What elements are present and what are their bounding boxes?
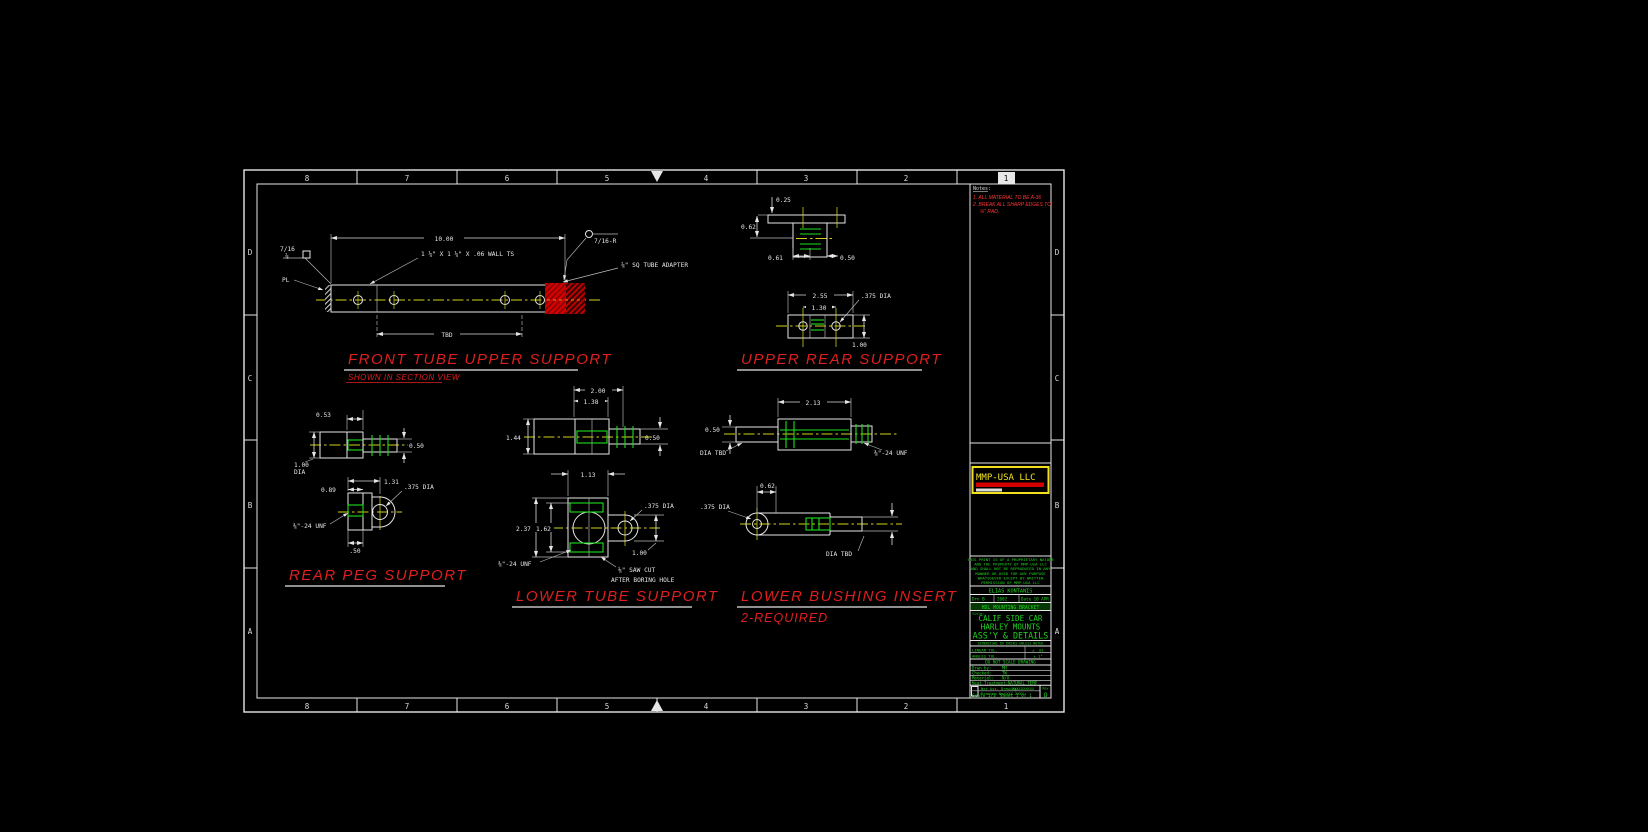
zone-label: 1 <box>1004 702 1009 711</box>
dim-label: .50 <box>349 548 360 555</box>
drn-date-field: 2002 <box>997 597 1008 602</box>
note-line: 2. BREAK ALL SHARP EDGES TO <box>972 202 1051 208</box>
leader-note: .375 DIA <box>644 503 674 510</box>
cad-viewport: 8 7 6 5 4 3 2 1 8 7 6 5 4 3 2 1 D C B A … <box>0 0 1648 832</box>
zone-label: 8 <box>305 174 310 183</box>
dim-label: 1.38 <box>584 399 599 406</box>
tol-angle-value: ± 1° <box>1033 654 1042 659</box>
heat-value: NATURAL TEMP <box>1008 680 1037 685</box>
plate-label: PL <box>282 277 290 284</box>
zone-label: 8 <box>305 702 310 711</box>
weld-symbol-right: 7/16-R <box>564 231 618 281</box>
dim-label: 10.00 <box>435 236 454 243</box>
company-logo: MMP-USA LLC <box>973 467 1049 493</box>
view-title: REAR PEG SUPPORT <box>289 567 467 584</box>
dim-label: 2.13 <box>806 400 821 407</box>
rev-value: O <box>1044 691 1048 699</box>
zone-label: 5 <box>605 702 610 711</box>
next-assy-value: XXXXXXXXXX <box>1012 687 1035 691</box>
dim-label: 0.50 <box>840 255 855 262</box>
dim-label: 0.62 <box>741 224 756 231</box>
center-mark-top <box>651 171 663 182</box>
rev-label: Rev <box>1043 687 1049 691</box>
dim-label: 2.55 <box>813 293 828 300</box>
dim-label: 1.62 <box>536 526 551 533</box>
dim-label: 1.30 <box>812 305 827 312</box>
zone-label: C <box>1055 374 1060 383</box>
logo-red-bar <box>976 483 1044 488</box>
leader-note: DIA TBD <box>826 551 852 558</box>
dim-label: 1.00 <box>294 462 309 469</box>
view-front-tube-upper-support: 10.00 7/16 ⅞ PL 1 ¼" X 1 ¼" X .06 WALL T… <box>280 231 688 383</box>
view-title: FRONT TUBE UPPER SUPPORT <box>348 351 612 368</box>
zone-label: B <box>248 501 253 510</box>
leader-note: ⅛" SAW CUT <box>618 565 656 574</box>
dim-label: 1.31 <box>384 479 399 486</box>
weld-size-label: 7/16-R <box>594 238 617 245</box>
dim-label: 0.89 <box>321 487 336 494</box>
leader-note: ⅜"-24 UNF <box>293 522 327 530</box>
no-scale-note: DO NOT SCALE DRAWING <box>985 660 1036 665</box>
zone-label: 6 <box>505 174 510 183</box>
dim-label: 0.53 <box>316 412 331 419</box>
dim-label: 2.37 <box>516 526 531 533</box>
dim-label: 1.44 <box>506 435 521 442</box>
dim-label: TBD <box>441 332 452 339</box>
tol-linear-label: LINEAR TOL. <box>972 648 998 653</box>
tol-linear-value: ± .01 <box>1032 648 1044 653</box>
leader-note: .375 DIA <box>700 504 730 511</box>
leader-note: ⅜"-24 UNF <box>498 560 532 568</box>
zone-label: D <box>1055 248 1060 257</box>
dim-label: 0.50 <box>409 443 424 450</box>
zone-label: 3 <box>804 702 809 711</box>
zone-label: C <box>248 374 253 383</box>
title-block: Notes: 1. ALL MATERIAL TO BE A-36 2. BRE… <box>967 184 1054 699</box>
zone-label: 1 <box>1004 174 1009 183</box>
weld-size-label: ⅞ <box>285 252 289 260</box>
note-line: ⅛" RAD. <box>980 209 999 215</box>
drawing-title: CALIF SIDE CAR HARLEY MOUNTS ASS'Y & DET… <box>973 614 1049 641</box>
zone-label: B <box>1055 501 1060 510</box>
zone-label: 5 <box>605 174 610 183</box>
leader-note: AFTER BORING HOLE <box>611 577 675 584</box>
zone-label: 7 <box>405 174 410 183</box>
dim-label: 1.13 <box>581 472 596 479</box>
dim-label: 0.50 <box>645 435 660 442</box>
zone-label: D <box>248 248 253 257</box>
dims-note: DIMENSIONS IN INCHES UNLESS NOTED <box>978 642 1044 646</box>
leader-note: ⅞" SQ TUBE ADAPTER <box>621 261 688 269</box>
dim-label: 0.50 <box>705 427 720 434</box>
view-title: UPPER REAR SUPPORT <box>741 351 942 368</box>
leader-note: DIA TBD <box>700 450 726 457</box>
leader-note: 1 ¼" X 1 ¼" X .06 WALL TS <box>421 250 514 258</box>
notes-header: Notes: <box>973 186 991 192</box>
note-line: 1. ALL MATERIAL TO BE A-36 <box>973 195 1041 201</box>
notes-block: Notes: 1. ALL MATERIAL TO BE A-36 2. BRE… <box>972 186 1051 215</box>
zone-label: 4 <box>704 174 709 183</box>
view-lower-bushing-insert: 2.13 0.50 DIA TBD ⅜"-24 UNF 0.62 .375 DI… <box>700 397 958 625</box>
company-name: ELIAS KONTANIS <box>989 589 1033 595</box>
view-subtitle: 2-REQUIRED <box>740 611 828 625</box>
dim-label: 0.25 <box>776 197 791 204</box>
leader-note: .375 DIA <box>404 484 434 491</box>
zone-label: A <box>1055 627 1060 636</box>
end-plate-hatch <box>325 285 331 312</box>
weld-size-label: 7/16 <box>280 246 295 253</box>
view-subtitle: SHOWN IN SECTION VIEW <box>348 373 461 382</box>
dim-label: 1.00 <box>632 550 647 557</box>
heat-label: Heat Treatment: <box>972 680 1008 685</box>
zone-label: 2 <box>904 702 909 711</box>
scale-value: Scale 1/1 <box>972 693 996 699</box>
logo-text: MMP-USA LLC <box>976 473 1036 483</box>
date-field: Date 10 APR <box>1021 597 1049 602</box>
center-mark-bottom <box>651 700 663 711</box>
logo-white-bar <box>976 489 1002 492</box>
dim-label: 1.00 <box>852 342 867 349</box>
square-tube-adapter <box>545 283 585 314</box>
leader-note: .375 DIA <box>861 293 891 300</box>
view-lower-tube-support: 2.00 1.38 1.44 0.50 1.13 2.37 1.62 .375 … <box>498 385 719 607</box>
dim-label: 0.62 <box>760 483 775 490</box>
leader-note: ⅜"-24 UNF <box>874 449 908 457</box>
view-upper-rear-support: 0.25 0.62 0.61 0.50 2.55 1.30 .375 DIA 1… <box>737 197 942 370</box>
zone-label: A <box>248 627 253 636</box>
view-rear-peg-support: 0.53 0.50 1.00 DIA 1.31 0.89 .375 DIA ⅜"… <box>285 410 467 586</box>
view-title: LOWER TUBE SUPPORT <box>516 588 719 605</box>
cad-sheet: 8 7 6 5 4 3 2 1 8 7 6 5 4 3 2 1 D C B A … <box>0 0 1648 832</box>
drawing-title-line: ASS'Y & DETAILS <box>973 631 1049 641</box>
zone-label: 3 <box>804 174 809 183</box>
zone-label: 4 <box>704 702 709 711</box>
proprietary-line: PERMISSION OF MMP-USA LLC <box>981 580 1040 585</box>
view-title: LOWER BUSHING INSERT <box>741 588 958 605</box>
zone-label: 7 <box>405 702 410 711</box>
zone-label: 6 <box>505 702 510 711</box>
tol-angle-label: ANGLES TOL. <box>972 654 998 659</box>
dim-label: DIA <box>294 469 305 476</box>
zone-label: 2 <box>904 174 909 183</box>
sheet-value: Sheet 1 of 1 <box>1000 693 1032 699</box>
dim-label: 2.00 <box>591 388 606 395</box>
drn-field: Drn B <box>972 597 985 602</box>
proprietary-note: THIS PRINT IS OF A PROPRIETARY NATURE AN… <box>967 557 1054 585</box>
dim-label: 0.61 <box>768 255 783 262</box>
